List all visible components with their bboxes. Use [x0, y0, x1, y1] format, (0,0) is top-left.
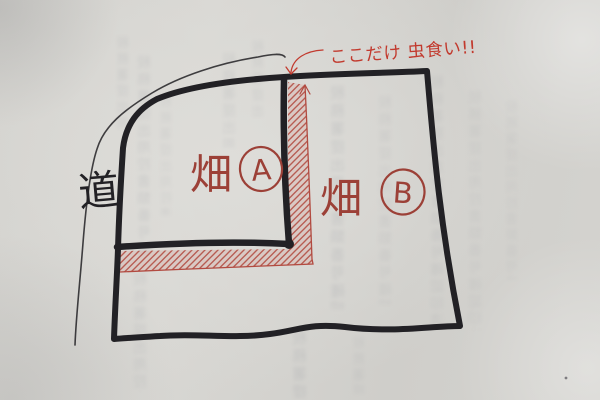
divider-corner-dot	[284, 239, 294, 249]
paper-background: 税務署提出用控書類番号確認印済行数量金額合計参照図面写空欄 税務署提出用控書類番…	[0, 0, 600, 400]
ink-speck	[565, 377, 568, 380]
field-a-label: 畑	[190, 150, 232, 199]
sketch-svg: ここだけ 虫食い!! 道 畑 A 畑 B	[0, 0, 600, 400]
field-b-label: 畑	[320, 174, 362, 223]
annotation-text: ここだけ 虫食い!!	[329, 38, 477, 68]
road-label: 道	[76, 165, 121, 216]
field-a-letter: A	[250, 152, 273, 188]
field-b-letter: B	[392, 175, 414, 210]
